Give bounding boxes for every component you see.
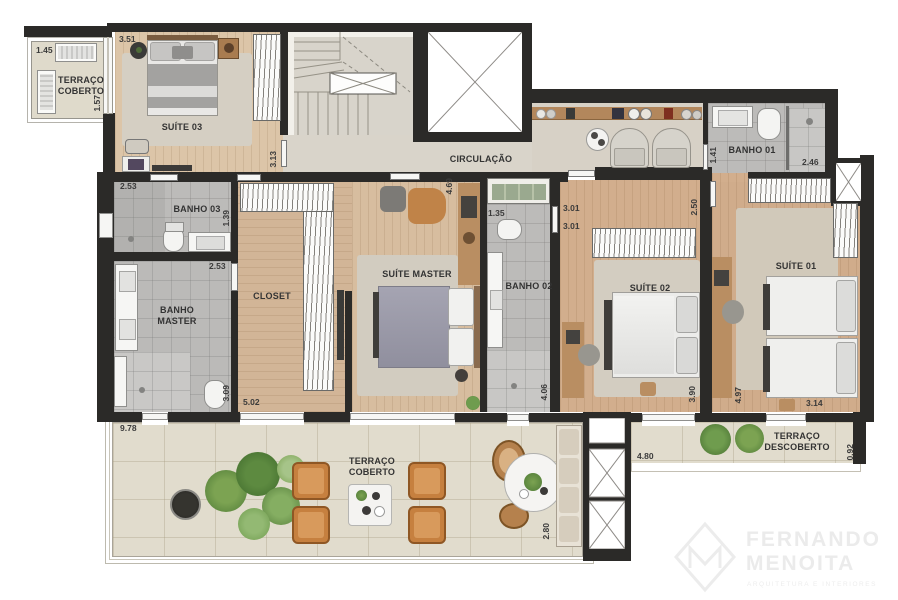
svg-text:MENOITA: MENOITA <box>746 552 855 575</box>
svg-text:FERNANDO: FERNANDO <box>746 528 881 551</box>
svg-text:ARQUITETURA E INTERIORES: ARQUITETURA E INTERIORES <box>747 581 877 588</box>
